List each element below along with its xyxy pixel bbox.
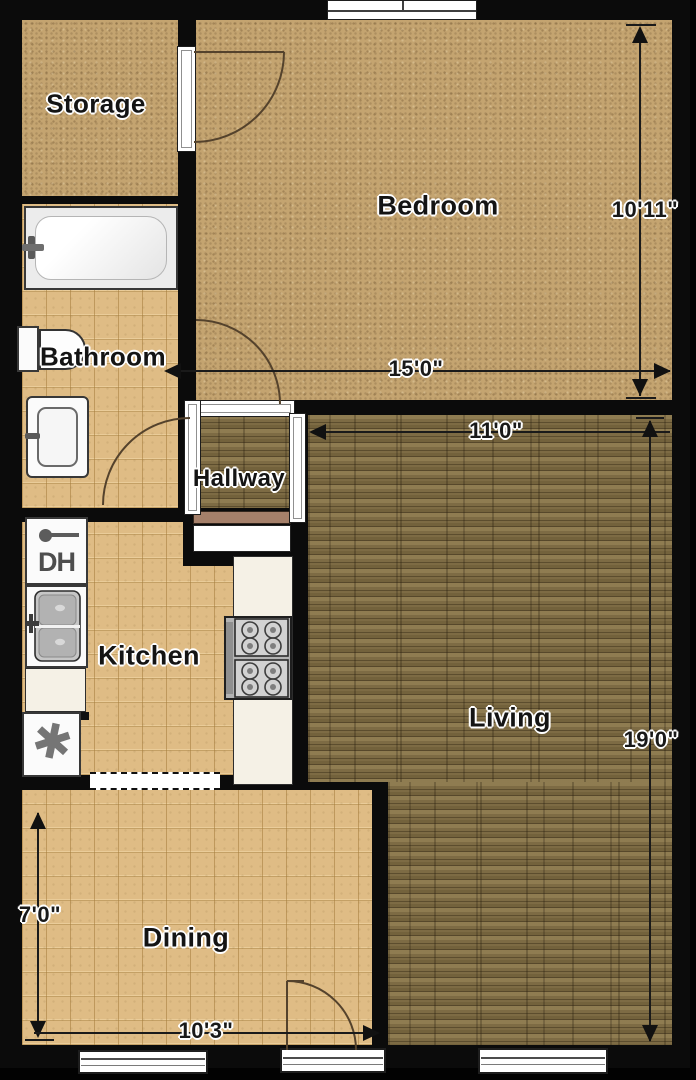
bathroom-sink-basin <box>37 407 78 467</box>
dining-window <box>78 1050 208 1074</box>
dim-label-bedroom-width: 15'0" <box>389 356 444 382</box>
entry-door-threshold <box>280 1048 386 1073</box>
hallway-right-door-frame <box>289 413 306 523</box>
floor-plan: DH ✱ <box>0 0 696 1080</box>
dishwasher-icon-stem <box>49 533 79 537</box>
bathroom-sink <box>26 396 89 478</box>
dim-label-living-depth: 19'0" <box>624 727 679 753</box>
living-window <box>478 1048 608 1074</box>
bathtub-faucet-icon <box>22 244 44 251</box>
bathtub-basin <box>35 216 167 280</box>
stove <box>224 616 292 700</box>
door-latch <box>81 712 89 720</box>
dim-label-dining-width: 10'3" <box>179 1018 234 1044</box>
storage-label: Storage <box>46 89 146 120</box>
stove-burners-icon <box>226 618 290 698</box>
dining-floor <box>22 790 372 1045</box>
hallway-label: Hallway <box>193 465 285 493</box>
hallway-left-door-frame <box>184 400 201 515</box>
dishwasher-label: DH <box>38 547 75 578</box>
bedroom-window <box>327 0 477 20</box>
bedroom-label: Bedroom <box>377 191 498 222</box>
dishwasher: DH <box>25 517 88 585</box>
closet-box <box>193 525 291 552</box>
pass-through-counter <box>90 772 220 790</box>
bathroom-label: Bathroom <box>40 342 166 373</box>
kitchen-counter-left <box>25 668 86 712</box>
kitchen-sink-basins <box>27 587 86 666</box>
closet-shelf <box>193 511 291 524</box>
kitchen-sink <box>25 585 88 668</box>
dining-label: Dining <box>143 923 229 954</box>
bathtub <box>24 206 178 290</box>
utility-fan-unit: ✱ <box>22 712 81 777</box>
hallway-floor <box>197 415 290 512</box>
fan-icon: ✱ <box>27 715 76 770</box>
toilet-tank <box>17 326 39 372</box>
kitchen-label: Kitchen <box>98 641 200 672</box>
living-label: Living <box>469 703 551 734</box>
bathroom-sink-faucet-icon <box>25 433 40 439</box>
living-floor-lower <box>388 782 672 1045</box>
dim-label-bedroom-depth: 10'11" <box>612 197 678 223</box>
storage-door-frame <box>177 46 196 152</box>
dim-label-living-width: 11'0" <box>469 418 523 444</box>
dim-label-dining-depth: 7'0" <box>19 902 61 928</box>
